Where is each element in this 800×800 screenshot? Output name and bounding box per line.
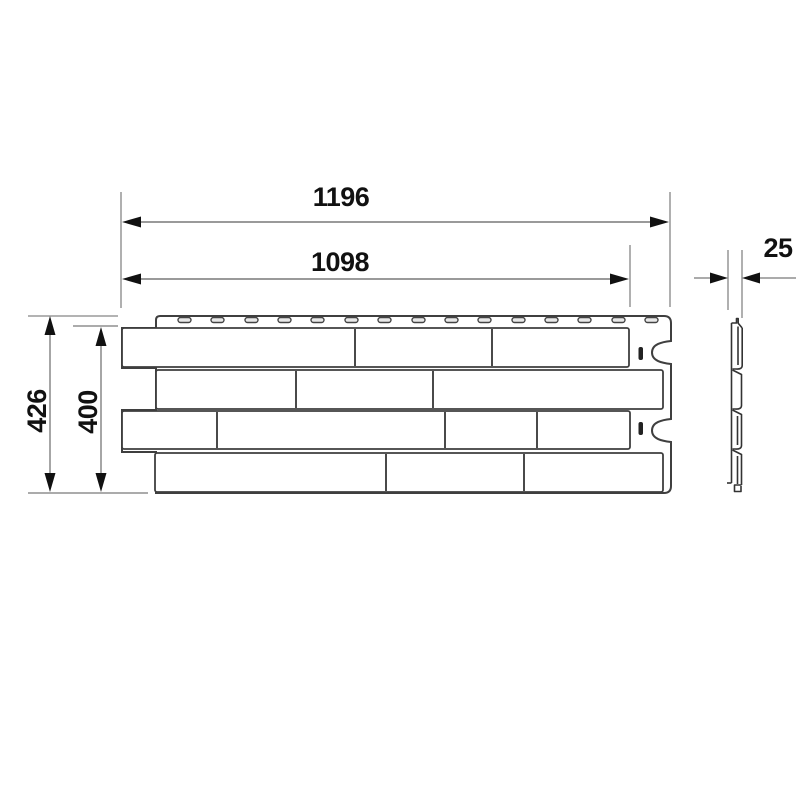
arrowhead-left [122, 217, 141, 228]
arrowhead-top [45, 316, 56, 335]
brick-row-2 [156, 370, 663, 409]
dimension-overall-width: 1196 [121, 182, 670, 308]
profile-bottom-hem [735, 485, 742, 492]
nail-slot [578, 318, 591, 323]
brick-row-outline [155, 453, 663, 492]
overall-height-label: 426 [22, 389, 52, 433]
nail-slot [378, 318, 391, 323]
brick-row-3 [122, 411, 630, 449]
thickness-label: 25 [763, 233, 793, 263]
profile-section [733, 370, 742, 409]
overall-width-label: 1196 [313, 182, 370, 212]
nail-slot [412, 318, 425, 323]
dimension-thickness: 25 [694, 233, 796, 318]
arrowhead-top [96, 327, 107, 346]
arrowhead-left [122, 274, 141, 285]
nail-slot [211, 318, 224, 323]
arrowhead-bottom [45, 473, 56, 492]
nail-slot [345, 318, 358, 323]
technical-drawing-canvas: 1196 1098 25 426 400 [0, 0, 800, 800]
nail-slot [278, 318, 291, 323]
arrowhead-bottom [96, 473, 107, 492]
brick-row-outline [122, 328, 629, 367]
brick-row-4 [155, 453, 663, 492]
nail-slot [245, 318, 258, 323]
dimension-working-width: 1098 [122, 245, 630, 307]
nail-slot [612, 318, 625, 323]
edge-lock-slot [639, 347, 644, 360]
nail-slot [512, 318, 525, 323]
nail-slot [178, 318, 191, 323]
nail-slot [478, 318, 491, 323]
arrowhead-right [610, 274, 629, 285]
arrowhead-right [650, 217, 669, 228]
brick-row-outline [122, 411, 630, 449]
nail-slot [645, 318, 658, 323]
brick-row-outline [156, 370, 663, 409]
brick-row-1 [122, 328, 629, 367]
panel-side-profile [727, 319, 742, 492]
nail-slot [545, 318, 558, 323]
panel-front-view [122, 316, 671, 493]
nail-strip [178, 318, 658, 323]
working-width-label: 1098 [311, 247, 370, 277]
edge-lock-slot [639, 422, 644, 435]
nail-slot [311, 318, 324, 323]
working-height-label: 400 [73, 390, 103, 434]
arrowhead-right [742, 273, 760, 284]
dimension-working-height: 400 [73, 326, 118, 492]
profile-top-hem [732, 319, 743, 329]
drawing-page: 1196 1098 25 426 400 [0, 0, 800, 800]
arrowhead-left [710, 273, 728, 284]
nail-slot [445, 318, 458, 323]
